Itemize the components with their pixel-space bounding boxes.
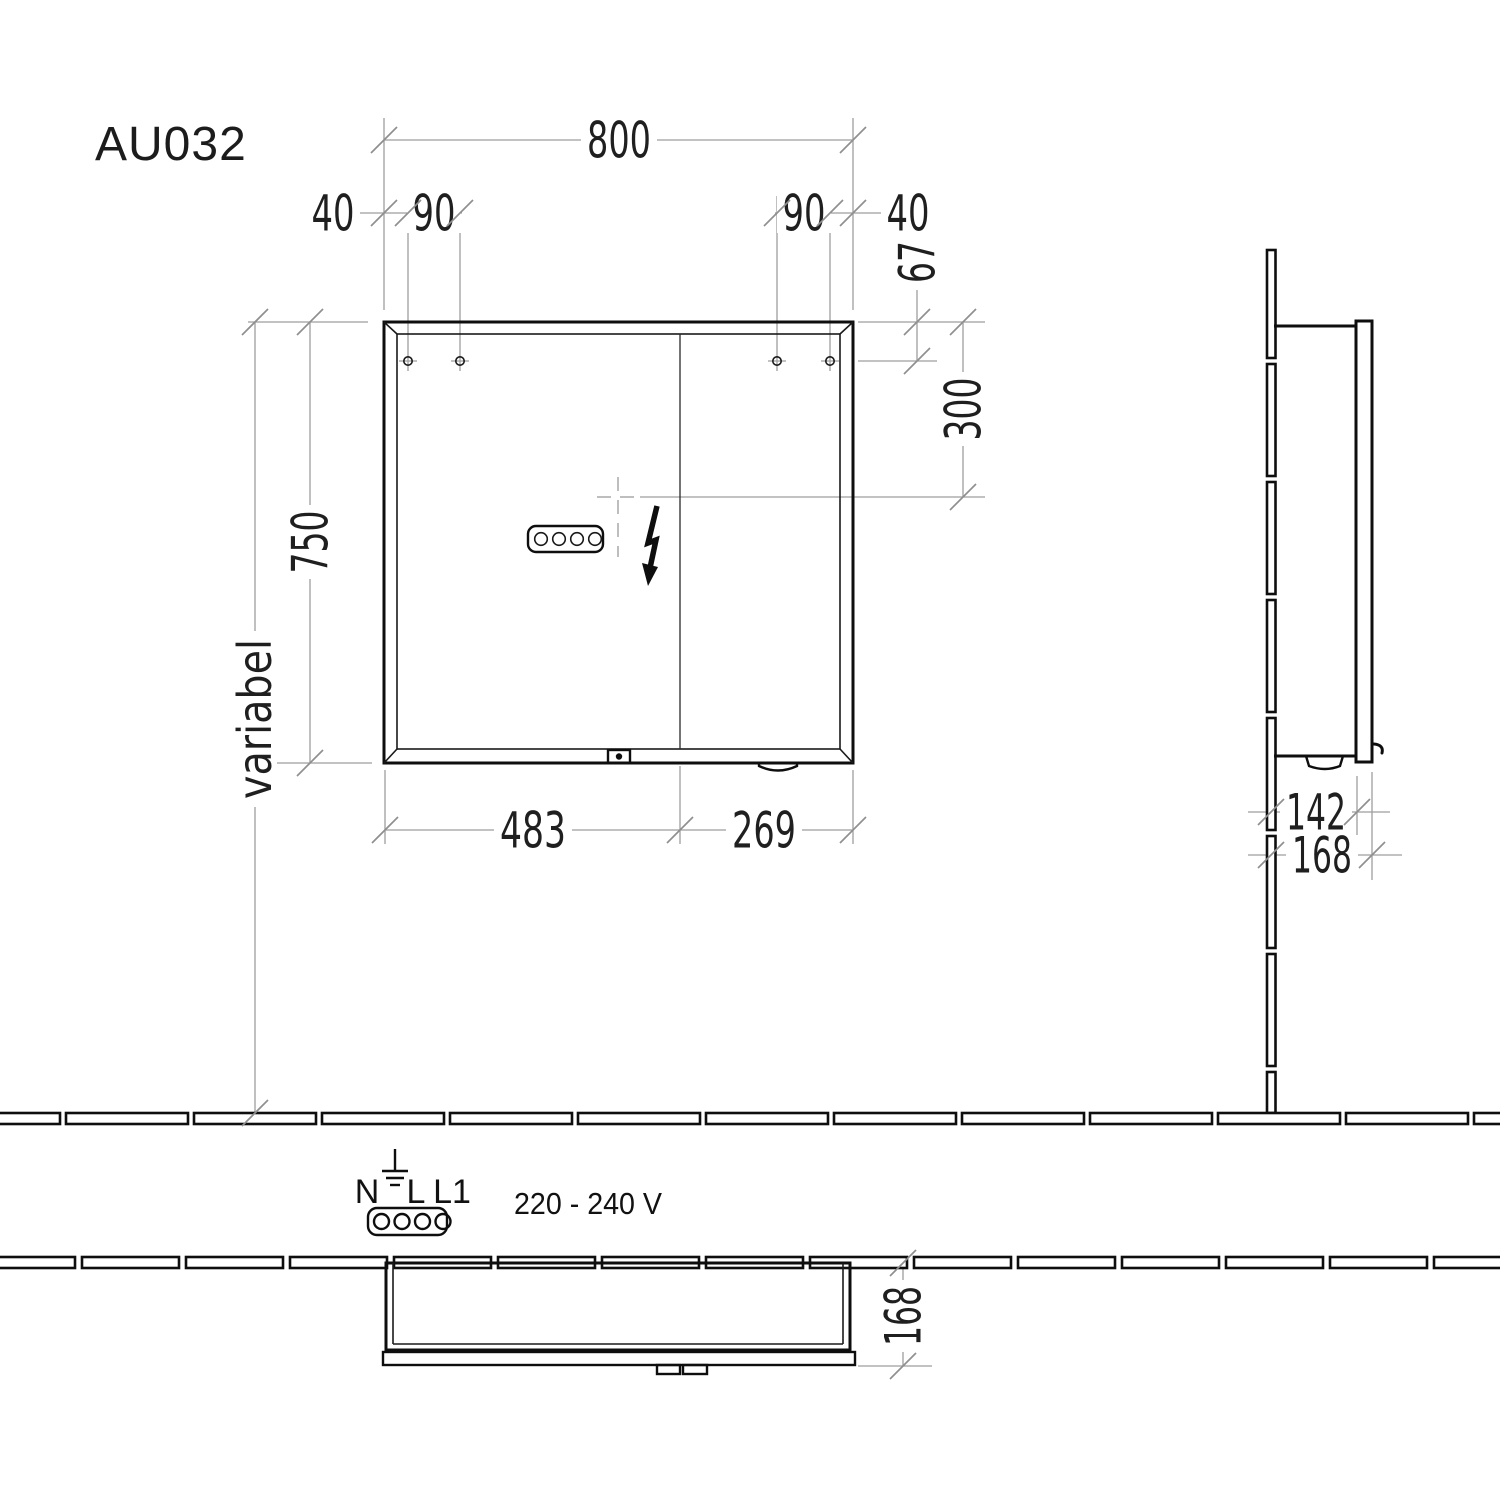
terminal-label-l1: L1 — [433, 1173, 471, 1211]
top-view — [383, 1263, 855, 1374]
dim-hole-pitch-right: 90 — [777, 185, 831, 243]
svg-text:750: 750 — [282, 511, 340, 574]
earth-ground-icon — [382, 1149, 408, 1185]
electrical-diagram: N L L1 220 - 240 V — [355, 1149, 663, 1235]
mounting-holes — [399, 357, 839, 365]
power-connector-icon — [368, 1208, 451, 1235]
svg-text:90: 90 — [413, 185, 456, 243]
svg-text:90: 90 — [783, 185, 826, 243]
dim-door-right-width: 269 — [726, 802, 802, 860]
terminal-label-n: N — [355, 1173, 380, 1211]
svg-text:483: 483 — [500, 802, 566, 860]
cabinet-outer-frame — [384, 322, 853, 763]
dim-hole-pitch-left: 90 — [407, 185, 461, 243]
corner-bevels — [384, 322, 853, 763]
dim-total-depth: 168 — [1286, 827, 1358, 885]
svg-text:800: 800 — [587, 112, 651, 170]
bottom-light — [1306, 756, 1343, 769]
dim-holes-from-top: 67 — [889, 235, 947, 289]
technical-drawing-page: N L L1 220 - 240 V AU032 800 40 90 90 — [0, 0, 1500, 1500]
dim-door-left-width: 483 — [494, 802, 572, 860]
wall-section-upper — [0, 1113, 1500, 1124]
drawing-canvas: N L L1 220 - 240 V AU032 800 40 90 90 — [0, 0, 1500, 1500]
svg-text:168: 168 — [1292, 827, 1352, 885]
svg-text:67: 67 — [889, 241, 947, 283]
dim-hole-offset-right: 40 — [881, 185, 935, 243]
mirror-door-panel — [1356, 321, 1372, 762]
dim-height-total: 750 — [282, 505, 340, 579]
svg-text:300: 300 — [935, 378, 993, 441]
dim-hole-offset-left: 40 — [306, 185, 360, 243]
dim-outlet-from-top: 300 — [935, 372, 993, 446]
svg-text:40: 40 — [312, 185, 355, 243]
svg-text:269: 269 — [732, 802, 796, 860]
terminal-label-l: L — [407, 1173, 426, 1211]
dim-mounting-height: variabel — [228, 631, 282, 807]
door-handle-plan — [657, 1365, 707, 1374]
cable-hook — [1374, 744, 1382, 753]
cabinet-body-plan — [386, 1263, 850, 1350]
lightning-bolt-icon — [642, 506, 658, 586]
dim-width-total: 800 — [581, 112, 657, 170]
door-lock — [608, 750, 630, 763]
svg-text:variabel: variabel — [228, 639, 282, 799]
wall-mounting-rail — [1267, 250, 1276, 1113]
door-front-plan — [383, 1352, 855, 1365]
front-view — [384, 322, 853, 771]
side-view — [1267, 250, 1382, 1113]
svg-text:168: 168 — [875, 1286, 933, 1346]
voltage-label: 220 - 240 V — [514, 1186, 662, 1221]
svg-text:40: 40 — [887, 185, 930, 243]
power-connector-icon — [528, 526, 603, 552]
page-title: AU032 — [95, 118, 247, 171]
cabinet-inner-frame — [397, 334, 840, 749]
dim-plan-depth: 168 — [875, 1280, 933, 1352]
